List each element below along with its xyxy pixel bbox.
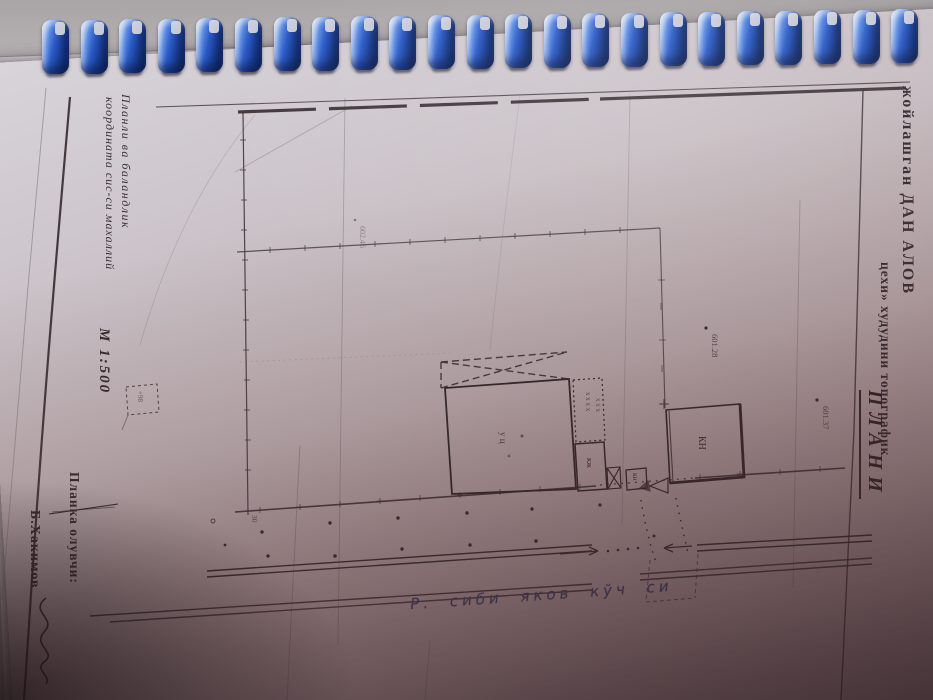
frame-top-thick-dashed [238, 99, 600, 112]
binding-ring [312, 17, 339, 71]
elevation-label: 601.37 [821, 406, 831, 429]
binding-ring [351, 16, 378, 70]
elevation-points [354, 219, 819, 402]
buildings [122, 352, 744, 494]
binding-ring [814, 10, 841, 64]
coordinate-note-line2: координата сис-си махаллий [102, 97, 117, 270]
binding-ring [428, 15, 455, 69]
shed-crossed [607, 467, 621, 489]
gable-roof-dashed [441, 352, 569, 388]
binding-ring [235, 18, 262, 72]
legend-box-label: +98 [136, 391, 144, 402]
dimension-dots [607, 547, 640, 553]
gate-symbol [640, 478, 668, 493]
surveyor-name: Б.Хакимов [26, 510, 42, 589]
binding-ring [891, 9, 918, 63]
binding-ring [196, 18, 223, 72]
binding-ring [621, 13, 648, 67]
gravel-surface-dots [211, 503, 656, 557]
binding-ring [158, 19, 185, 73]
elevation-label: 601.28 [710, 334, 720, 357]
binding-ring [505, 14, 532, 68]
building-main-outline [445, 379, 576, 494]
coordinate-note-line1: Планли ва баландлик [118, 94, 133, 229]
building-kzh-label: кж [585, 458, 595, 468]
binding-ring [660, 12, 687, 66]
hatch-x-marks: х х х [594, 398, 602, 413]
photo-of-bound-plan-document: у ц х х х х х х х кж кн КН 601.28 601.37… [0, 0, 933, 700]
binding-ring [81, 20, 108, 74]
binding-ring [853, 10, 880, 64]
pencil-grid-lines [140, 95, 800, 700]
building-kn-label: КН [696, 436, 707, 450]
plot-boundary-lines [235, 112, 845, 515]
road-edge-lines [90, 535, 872, 622]
surveyor-label: Планка олувчи: [66, 472, 82, 584]
binding-ring [698, 12, 725, 66]
hatch-x-marks: х х х х [584, 392, 592, 412]
scale-label: М 1:500 [95, 328, 112, 394]
binding-ring [737, 11, 764, 65]
frame-left-curved [24, 97, 70, 700]
binding-ring [389, 16, 416, 70]
elevation-label: 602.46 [358, 226, 367, 248]
frame-top-thick [600, 88, 906, 99]
binding-ring [42, 20, 69, 74]
binding-ring [544, 14, 571, 68]
frame-top-thin [156, 82, 910, 107]
binding-ring [119, 19, 146, 73]
binding-ring [467, 15, 494, 69]
building-main-label: у ц [498, 432, 508, 444]
building-kn-small-label: кн [631, 473, 640, 481]
binding-ring [582, 13, 609, 67]
binding-ring [274, 17, 301, 71]
binding-ring [775, 11, 802, 65]
header-line-located: жойлашган ДАН АЛОВ [898, 86, 916, 295]
dimension-label-30: 30 [250, 515, 259, 523]
page-title-plani: ПЛАНИ [859, 390, 886, 499]
